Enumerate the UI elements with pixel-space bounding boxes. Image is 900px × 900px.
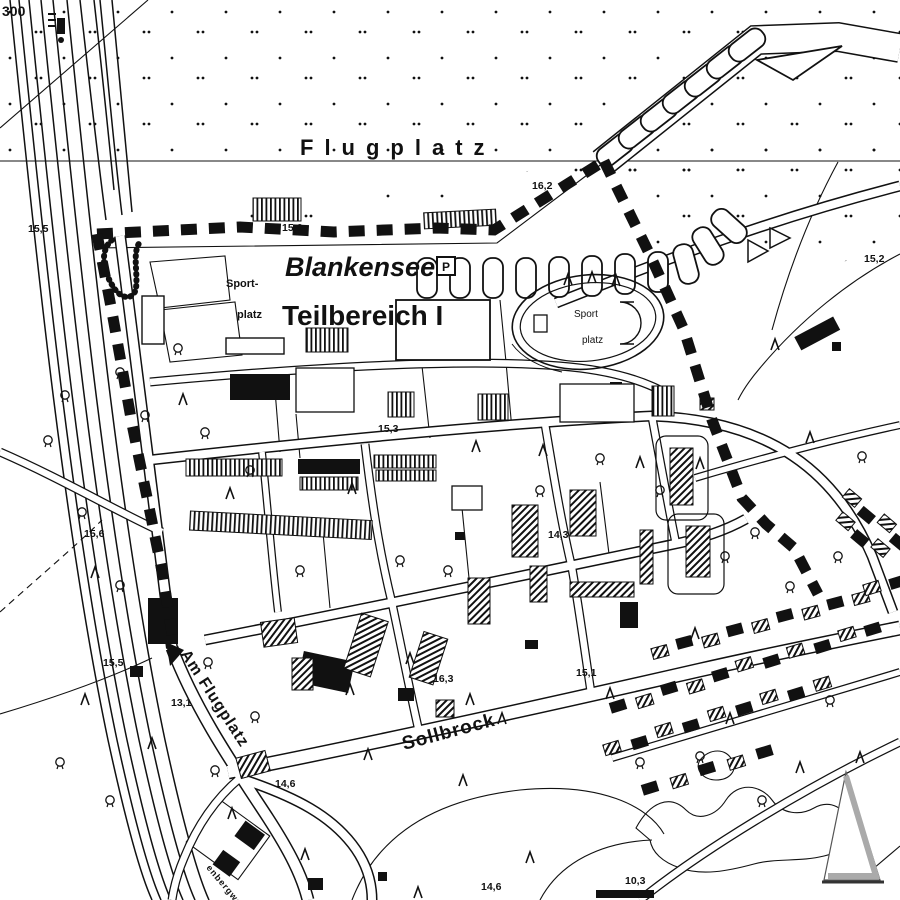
elevation-label: 15,5 (103, 657, 124, 669)
sportfield-right-line2: platz (582, 335, 603, 346)
area-label-flugplatz: Flugplatz (300, 135, 496, 160)
elevation-label: 14,3 (548, 529, 569, 541)
elevation-label: 10,3 (625, 875, 646, 887)
elevation-label: 14,6 (275, 778, 296, 790)
sportfield-left-line1: Sport- (226, 278, 259, 290)
city-plan-map: P Flugplatz Blankensee Teilbereich I Spo… (0, 0, 900, 900)
elevation-label: 15,1 (576, 667, 597, 679)
plan-label-teilbereich: Teilbereich I (282, 300, 443, 331)
elevation-label: 13,1 (171, 697, 192, 709)
elevation-label: 16,2 (532, 180, 553, 192)
elevation-label: 14,6 (481, 881, 502, 893)
elevation-label: 16,3 (433, 673, 454, 685)
elevation-label: 15,3 (378, 423, 399, 435)
map-page: P Flugplatz Blankensee Teilbereich I Spo… (0, 0, 900, 900)
elevation-label: 15,6 (282, 222, 303, 234)
parking-symbol: P (437, 257, 455, 275)
site-name-blankensee: Blankensee (285, 252, 435, 282)
corner-coordinate: 300 (2, 3, 26, 19)
elevation-label: 15,6 (84, 528, 105, 540)
parking-symbol-letter: P (442, 260, 450, 274)
elevation-label: 15,2 (864, 253, 885, 265)
sportfield-right-line1: Sport (574, 309, 598, 320)
elevation-label: 15,5 (28, 223, 49, 235)
sportfield-left-line2: platz (237, 309, 263, 321)
